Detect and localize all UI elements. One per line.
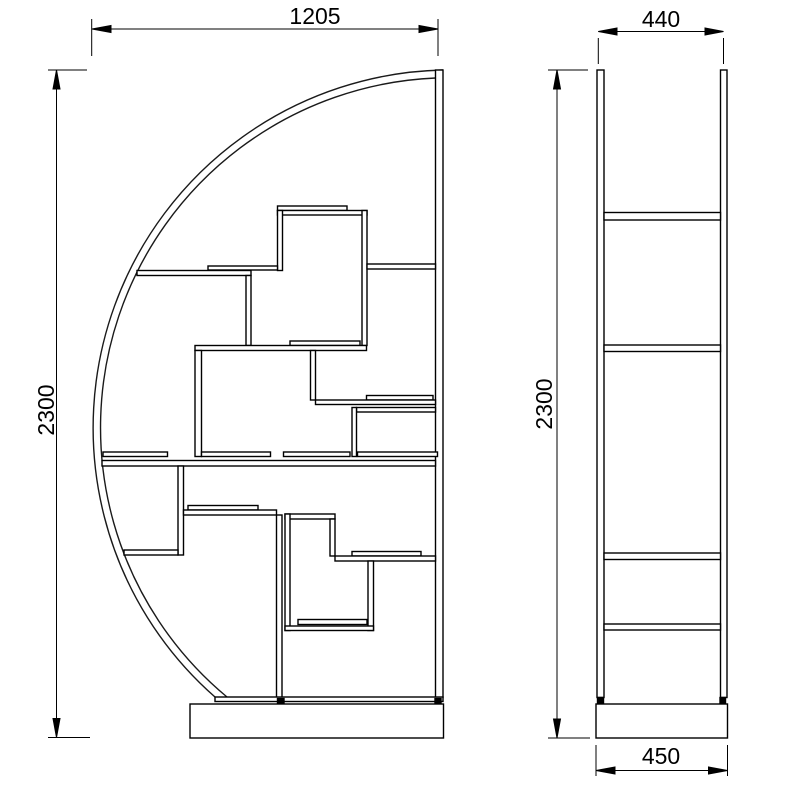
side-right-post <box>721 70 728 698</box>
dim-side-depth-label: 440 <box>642 6 680 32</box>
side-shelf-edge <box>604 345 721 352</box>
compartment-top-panel <box>357 408 436 413</box>
box-top-panel <box>285 514 335 519</box>
shelf-panel <box>184 510 277 515</box>
bottom-panel <box>215 697 443 702</box>
box-top-panel <box>278 211 368 216</box>
box-right-wall <box>362 211 367 346</box>
side-left-post <box>597 70 604 698</box>
side-shelf-edge <box>604 624 721 630</box>
shelf-panel <box>195 346 367 351</box>
shelf-panel <box>316 400 436 405</box>
box-left-wall <box>285 514 290 631</box>
dim-side-height-label: 2300 <box>531 378 557 429</box>
shelf-panel <box>137 271 251 276</box>
central-divider <box>277 515 283 698</box>
foot-mark <box>598 698 604 705</box>
shelf-panel <box>367 264 436 269</box>
side-plinth-base <box>596 704 728 738</box>
side-shelf-edge <box>604 213 721 221</box>
vertical-divider <box>368 561 374 631</box>
front-right-side-panel <box>436 70 444 698</box>
vertical-divider <box>311 351 316 401</box>
shelf-lip-plate <box>202 452 271 457</box>
front-plinth-base <box>190 704 444 738</box>
compartment-floor-panel <box>285 626 374 631</box>
box-right-wall <box>330 519 335 556</box>
vertical-divider <box>195 351 202 457</box>
shelf-lip-plate <box>358 452 438 457</box>
shelf-panel <box>335 556 436 561</box>
shelf-panel <box>124 550 178 555</box>
compartment-left-wall <box>352 408 357 457</box>
vertical-divider <box>246 276 251 346</box>
technical-drawing: 1205 2300 440 2300 450 <box>0 0 795 803</box>
dim-front-width-label: 1205 <box>289 3 340 29</box>
shelf-lip-plate <box>298 620 367 625</box>
shelf-lip-plate <box>284 452 351 457</box>
main-shelf-panel <box>102 461 436 467</box>
shelf-lip-plate <box>208 266 278 270</box>
drawing-canvas: 1205 2300 440 2300 450 <box>0 0 795 803</box>
dim-front-height-label: 2300 <box>33 384 59 435</box>
vertical-divider <box>178 466 184 555</box>
shelf-lip-plate <box>103 452 168 457</box>
side-shelf-edge <box>604 553 721 560</box>
box-left-wall <box>278 211 283 271</box>
dim-side-base-label: 450 <box>642 743 680 769</box>
foot-mark <box>720 698 726 705</box>
